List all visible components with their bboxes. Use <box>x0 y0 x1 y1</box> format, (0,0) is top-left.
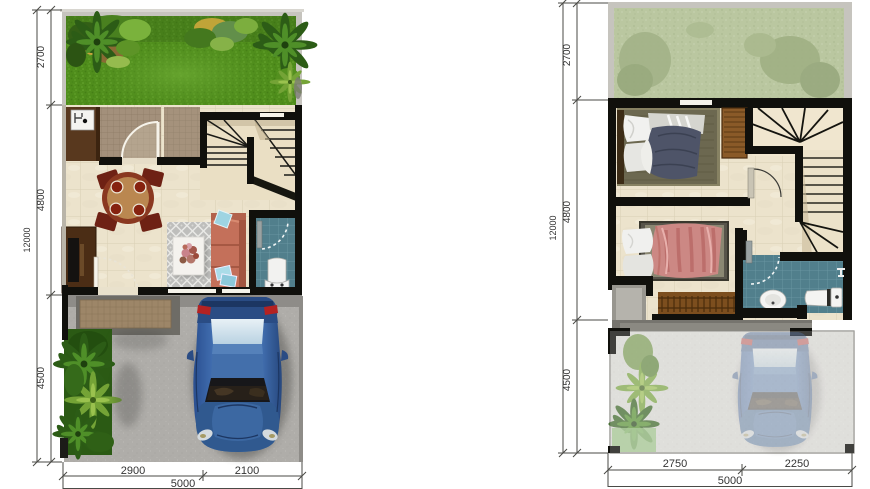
svg-text:4500: 4500 <box>562 368 573 391</box>
svg-text:5000: 5000 <box>718 475 742 487</box>
svg-text:4800: 4800 <box>562 200 573 223</box>
svg-text:2750: 2750 <box>663 458 687 470</box>
svg-text:5000: 5000 <box>171 478 195 489</box>
svg-text:2700: 2700 <box>562 43 573 66</box>
svg-text:2100: 2100 <box>235 465 259 477</box>
svg-text:4800: 4800 <box>36 188 47 211</box>
svg-text:12000: 12000 <box>22 227 32 252</box>
svg-text:2250: 2250 <box>785 458 809 470</box>
svg-text:2700: 2700 <box>36 45 47 68</box>
svg-text:2900: 2900 <box>121 465 145 477</box>
svg-text:12000: 12000 <box>548 215 558 240</box>
svg-text:4500: 4500 <box>36 366 47 389</box>
